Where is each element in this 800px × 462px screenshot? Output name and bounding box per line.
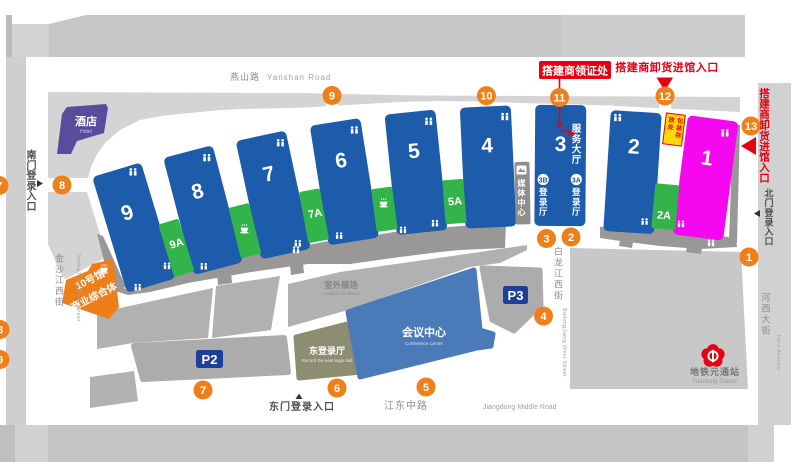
- svg-text:中: 中: [518, 197, 526, 207]
- svg-text:街: 街: [554, 290, 563, 301]
- svg-text:JinshaJiang West Street: JinshaJiang West Street: [75, 253, 81, 321]
- svg-text:3B: 3B: [539, 177, 548, 184]
- svg-text:10: 10: [480, 91, 492, 103]
- svg-text:录: 录: [764, 218, 773, 228]
- svg-text:录: 录: [539, 197, 548, 207]
- svg-text:口: 口: [759, 173, 770, 185]
- svg-text:Hexi Avenue: Hexi Avenue: [775, 335, 781, 370]
- svg-text:Jiangdong Middle Road: Jiangdong Middle Road: [483, 404, 557, 411]
- svg-text:9: 9: [329, 90, 335, 102]
- svg-text:心: 心: [518, 207, 526, 217]
- svg-text:登: 登: [763, 207, 774, 218]
- svg-text:白: 白: [554, 246, 563, 257]
- svg-text:酒店: 酒店: [75, 114, 97, 128]
- svg-text:金: 金: [55, 253, 64, 264]
- svg-text:登: 登: [26, 169, 38, 182]
- svg-text:BailongJiang West Street: BailongJiang West Street: [561, 308, 567, 377]
- svg-text:5A: 5A: [448, 195, 463, 208]
- svg-text:厅: 厅: [572, 206, 581, 216]
- svg-text:体: 体: [518, 188, 527, 198]
- svg-text:西: 西: [761, 304, 770, 314]
- svg-text:务: 务: [572, 133, 582, 145]
- svg-text:门: 门: [764, 197, 773, 208]
- svg-text:13: 13: [745, 121, 757, 133]
- svg-text:搭建商卸货进馆入口: 搭建商卸货进馆入口: [615, 60, 719, 74]
- svg-text:大: 大: [572, 144, 582, 156]
- svg-text:河: 河: [761, 292, 770, 303]
- svg-text:P3: P3: [508, 288, 524, 303]
- svg-text:西: 西: [55, 286, 64, 296]
- svg-text:Record the east login hall: Record the east login hall: [302, 358, 353, 363]
- svg-text:6: 6: [334, 383, 340, 395]
- svg-text:3: 3: [555, 133, 567, 156]
- svg-text:地铁元通站: 地铁元通站: [690, 366, 740, 377]
- svg-text:2: 2: [627, 135, 640, 159]
- svg-text:燕山路: 燕山路: [230, 71, 260, 82]
- svg-text:街: 街: [761, 325, 770, 336]
- svg-text:口: 口: [27, 202, 37, 213]
- svg-text:7: 7: [0, 180, 2, 192]
- svg-text:1: 1: [746, 252, 752, 264]
- svg-text:西: 西: [554, 280, 563, 290]
- svg-text:街: 街: [55, 296, 64, 307]
- svg-text:8: 8: [59, 180, 65, 192]
- svg-text:Conference Center: Conference Center: [405, 341, 444, 346]
- svg-text:江: 江: [55, 275, 64, 285]
- svg-text:9: 9: [0, 354, 3, 366]
- svg-text:南: 南: [27, 149, 37, 162]
- svg-text:Hotel: Hotel: [80, 129, 92, 135]
- svg-text:会议中心: 会议中心: [402, 325, 446, 339]
- svg-text:东登录厅: 东登录厅: [309, 345, 345, 356]
- svg-text:2: 2: [568, 232, 574, 244]
- svg-text:11: 11: [554, 92, 566, 104]
- svg-text:7: 7: [200, 385, 206, 397]
- svg-text:龙: 龙: [554, 257, 563, 268]
- svg-text:P2: P2: [202, 352, 218, 367]
- svg-text:录: 录: [572, 197, 581, 207]
- svg-text:Yanshan Road: Yanshan Road: [267, 73, 331, 82]
- svg-text:江: 江: [554, 269, 563, 279]
- svg-text:大: 大: [761, 314, 770, 325]
- svg-text:登: 登: [538, 187, 548, 197]
- svg-text:4: 4: [481, 134, 494, 158]
- svg-text:厅: 厅: [539, 206, 548, 216]
- svg-text:8: 8: [0, 324, 3, 336]
- svg-text:2A: 2A: [656, 209, 671, 222]
- svg-text:3: 3: [543, 233, 549, 245]
- svg-text:3A: 3A: [572, 177, 581, 184]
- svg-text:5: 5: [423, 382, 429, 394]
- svg-text:7A: 7A: [307, 207, 323, 221]
- svg-text:媒: 媒: [517, 178, 527, 188]
- svg-text:4: 4: [540, 311, 547, 323]
- svg-text:口: 口: [764, 237, 773, 247]
- svg-text:搭建商领证处: 搭建商领证处: [542, 64, 609, 78]
- svg-text:江东中路: 江东中路: [384, 399, 428, 412]
- svg-text:沙: 沙: [55, 264, 64, 274]
- svg-text:厅: 厅: [572, 155, 582, 166]
- svg-text:门: 门: [27, 159, 37, 172]
- svg-text:北: 北: [764, 188, 773, 199]
- svg-text:Yuantong Station: Yuantong Station: [692, 379, 738, 385]
- svg-text:东门登录入口: 东门登录入口: [269, 400, 335, 413]
- svg-text:Outdoor Exhibition: Outdoor Exhibition: [322, 291, 360, 296]
- svg-text:入: 入: [763, 227, 773, 237]
- svg-text:录: 录: [27, 180, 37, 192]
- svg-text:室外展场: 室外展场: [324, 280, 359, 290]
- svg-text:入: 入: [27, 191, 37, 203]
- svg-text:12: 12: [659, 91, 671, 103]
- svg-text:登: 登: [571, 187, 581, 197]
